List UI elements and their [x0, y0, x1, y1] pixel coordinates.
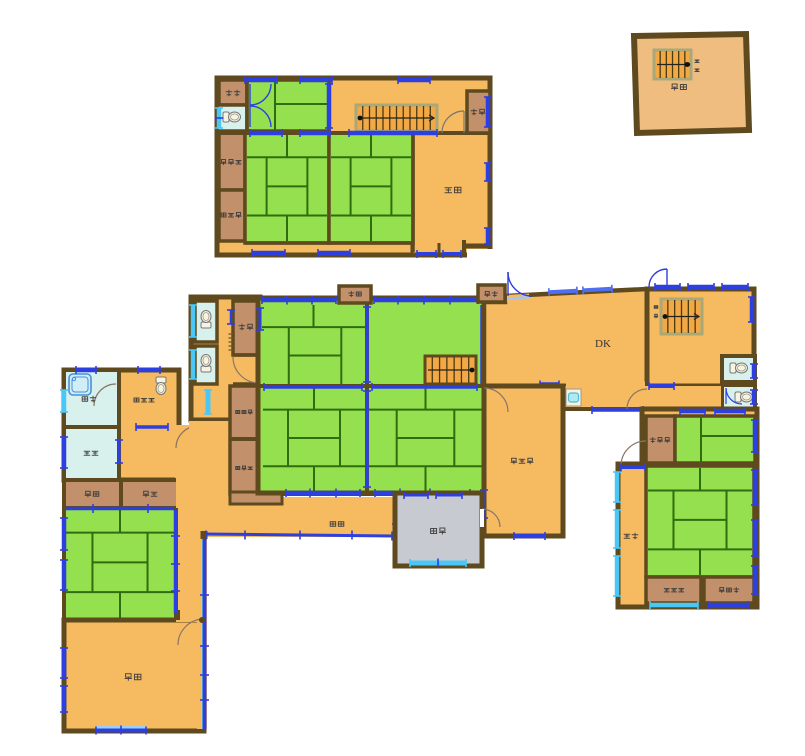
svg-text:DK: DK [595, 338, 611, 350]
